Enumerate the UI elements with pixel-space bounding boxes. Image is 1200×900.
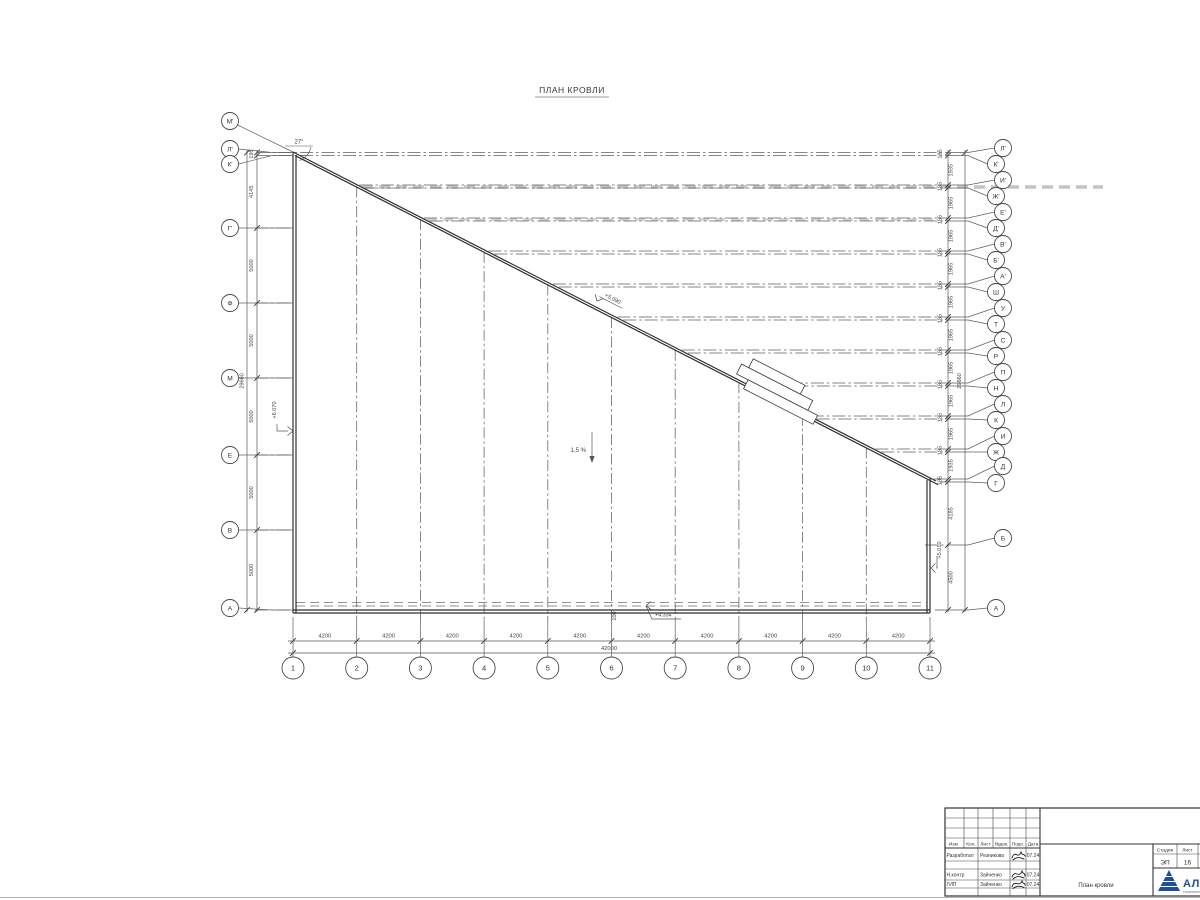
axis-leader <box>948 466 995 479</box>
dim-label: 5000 <box>249 334 255 346</box>
elevation-label: +5.010 <box>937 541 943 558</box>
axis-leader <box>948 386 988 388</box>
axis-marker-label: Б' <box>993 257 999 264</box>
axis-leader <box>948 482 988 483</box>
dim-label: 4200 <box>637 634 650 640</box>
row-role: Разработал <box>947 853 974 859</box>
axis-marker-label: 2 <box>355 664 359 673</box>
dim-label: 4145 <box>249 186 255 198</box>
axis-marker-label: Е <box>228 452 233 459</box>
dim-label: 4200 <box>446 634 459 640</box>
axis-marker-label: Ж' <box>992 193 999 200</box>
row-date: 07.24 <box>1027 853 1040 859</box>
axis-marker-label: А' <box>1000 273 1006 280</box>
elevation-label: +5.090 <box>603 293 621 306</box>
page-title: ПЛАН КРОВЛИ <box>539 85 605 95</box>
elevation-arrow-icon <box>593 294 603 303</box>
dim-label: 1965 <box>949 329 955 341</box>
dim-label: 5000 <box>249 486 255 498</box>
dim-label: 5000 <box>249 564 255 576</box>
slope-label: 1,5 % <box>571 448 587 454</box>
dim-label: 4200 <box>701 634 714 640</box>
row-role: Н.контр <box>947 873 965 879</box>
axis-marker-label: С <box>1001 337 1006 344</box>
dim-label: 1965 <box>949 395 955 407</box>
row-name: Зайченко <box>980 872 1002 879</box>
dim-label: 1965 <box>949 263 955 275</box>
roof-plan-canvas: ПЛАН КРОВЛИ 1954145500050005000500050002… <box>0 0 1200 900</box>
elevation-label: +4.334 <box>655 613 672 619</box>
axis-marker-label: 6 <box>609 664 613 673</box>
doc-title: План кровли <box>1078 883 1113 889</box>
row-role: ГИП <box>947 882 957 888</box>
drawing-title: ПЛАН КРОВЛИ <box>535 85 609 97</box>
dim-label: 195 <box>938 281 944 290</box>
axis-leader <box>948 320 988 324</box>
axis-marker-label: Л' <box>227 146 233 153</box>
dim-label: 1965 <box>949 197 955 209</box>
axis-marker-label: Ш <box>993 289 999 296</box>
dim-label: 195 <box>938 314 944 323</box>
axis-leader <box>948 404 995 416</box>
axis-leader <box>948 212 995 218</box>
dim-label: 195 <box>938 380 944 389</box>
axis-leader <box>948 538 995 545</box>
dim-label: 195 <box>938 446 944 455</box>
annotations: 27°1,5 %+6.070+5.090+5.010+4.334100 <box>272 140 943 621</box>
dim-total-label: 29660 <box>957 373 963 389</box>
row-date: 07.24 <box>1027 873 1040 879</box>
left-dimensions: 19541455000500050005000500029660 <box>240 149 260 612</box>
axis-marker-label: К' <box>993 161 998 168</box>
dim-label: 4500 <box>949 571 955 583</box>
slope-arrowhead <box>589 456 594 463</box>
dim-label: 1935 <box>949 164 955 176</box>
axis-marker-label: Б <box>1001 535 1005 542</box>
dim-label: 4200 <box>764 634 777 640</box>
axis-marker-label: Л' <box>1000 145 1006 152</box>
axis-leader <box>948 436 995 449</box>
axis-marker-label: Р <box>994 353 999 360</box>
logo-subtext: строительная компания <box>1183 890 1200 894</box>
axis-leader <box>948 148 995 153</box>
row-name: Резникова <box>980 853 1004 859</box>
axis-marker-label: 5 <box>546 664 550 673</box>
axis-leader <box>237 125 294 153</box>
axis-marker-label: Л <box>1001 401 1005 408</box>
axis-marker-label: П <box>1001 369 1006 376</box>
elevation-arrow-icon <box>288 427 294 436</box>
row-name: Зайченко <box>980 881 1002 888</box>
dim-label: 195 <box>938 248 944 257</box>
dim-label: 4200 <box>318 634 331 640</box>
col-kol: Кол. <box>966 842 976 848</box>
axis-marker-label: М <box>227 375 233 382</box>
dim-label: 1935 <box>949 459 955 471</box>
col-data: Дата <box>1028 842 1039 848</box>
dim-total-label: 42000 <box>601 646 617 652</box>
col-podp: Подп. <box>1012 842 1025 848</box>
dim-label: 195 <box>938 215 944 224</box>
axis-marker-label: А <box>994 605 999 612</box>
dim-label: 1965 <box>949 362 955 374</box>
col-list: Лист <box>980 842 991 848</box>
axis-marker-label: Г <box>994 480 998 487</box>
title-block: Изм. Кол. Лист №док. Подп. Дата Разработ… <box>945 808 1200 896</box>
axis-marker-label: В' <box>1000 241 1006 248</box>
dim-label: 4200 <box>892 634 905 640</box>
row-date: 07.24 <box>1027 882 1040 888</box>
axis-marker-label: 1 <box>291 664 295 673</box>
axis-marker-label: И <box>1001 433 1006 440</box>
axis-leader <box>948 340 995 350</box>
axis-marker-label: А <box>228 605 233 612</box>
dim-label: 195 <box>938 347 944 356</box>
dim-label: 1965 <box>949 428 955 440</box>
roof-hatch-detail <box>732 355 827 424</box>
axis-leader <box>948 419 988 420</box>
axis-marker-label: Д <box>1001 463 1006 470</box>
axis-leader <box>948 180 995 185</box>
dim-label: 4200 <box>382 634 395 640</box>
axis-leader <box>948 287 988 292</box>
axis-marker-label: 11 <box>926 664 934 673</box>
dim-label: 5000 <box>249 410 255 422</box>
axis-leader <box>948 276 995 284</box>
axis-leader <box>948 608 988 610</box>
elevation-label: +6.070 <box>272 401 278 418</box>
col-ndok: №док. <box>994 842 1008 848</box>
dim-label: 1965 <box>949 230 955 242</box>
dim-label: 5000 <box>249 259 255 271</box>
axis-leader <box>948 188 988 196</box>
elevation-on-slope: +5.090 <box>593 289 625 313</box>
axis-marker-label: 8 <box>737 664 741 673</box>
dim-total-label: 29660 <box>240 373 246 389</box>
axis-leader <box>948 372 995 383</box>
axis-leader <box>948 254 988 260</box>
dim-label: 195 <box>938 413 944 422</box>
dim-label: 4185 <box>949 507 955 519</box>
axis-marker-label: 9 <box>800 664 804 673</box>
axis-marker-label: Д' <box>993 225 999 232</box>
dim-label: 4200 <box>509 634 522 640</box>
axis-marker-label: 4 <box>482 664 486 673</box>
axis-marker-label: М' <box>227 118 234 125</box>
axis-marker-label: Н <box>994 385 999 392</box>
drawing-sheet: ПЛАН КРОВЛИ 1954145500050005000500050002… <box>0 0 1200 900</box>
axis-marker-label: Ф <box>227 300 232 307</box>
dim-label: 195 <box>938 182 944 191</box>
dim-label: 4200 <box>828 634 841 640</box>
axis-leader <box>948 308 995 317</box>
dim-label: 195 <box>938 476 944 485</box>
axis-leader <box>948 353 988 356</box>
bottom-axis-markers: 1234567891011 <box>282 617 941 679</box>
axis-marker-label: И' <box>1000 177 1006 184</box>
stage-value: ЭП <box>1160 860 1170 867</box>
axis-marker-label: Е' <box>1000 209 1006 216</box>
axis-marker-label: 3 <box>418 664 422 673</box>
axis-marker-label: Ж <box>993 449 999 456</box>
axis-marker-label: Т <box>994 321 998 328</box>
sheet-value: 16 <box>1184 860 1192 867</box>
axis-leader <box>948 244 995 251</box>
axis-marker-label: 7 <box>673 664 677 673</box>
logo-text: АЛЬЯНС <box>1183 878 1200 890</box>
dim-label: 195 <box>938 149 944 158</box>
offset-dim-label: 100 <box>612 611 618 620</box>
elevation-leader <box>277 424 288 431</box>
axis-marker-label: К <box>994 417 998 424</box>
roof-plan: 1954145500050005000500050002966019519351… <box>222 113 1104 680</box>
axis-leader <box>948 221 988 228</box>
roof-diagonal <box>293 152 936 481</box>
angle-label: 27° <box>294 140 304 146</box>
dim-label: 4200 <box>573 634 586 640</box>
axis-leader <box>948 156 988 165</box>
axis-marker-label: К' <box>227 161 232 168</box>
sheet-label: Лист <box>1182 848 1193 854</box>
axis-marker-label: В <box>228 527 233 534</box>
dim-label: 1965 <box>949 296 955 308</box>
axis-marker-label: Г' <box>228 225 233 232</box>
col-izm: Изм. <box>949 842 959 848</box>
axis-marker-label: 10 <box>862 664 870 673</box>
elevation-arrow-icon <box>931 564 936 573</box>
stage-label: Стадия <box>1157 848 1174 854</box>
